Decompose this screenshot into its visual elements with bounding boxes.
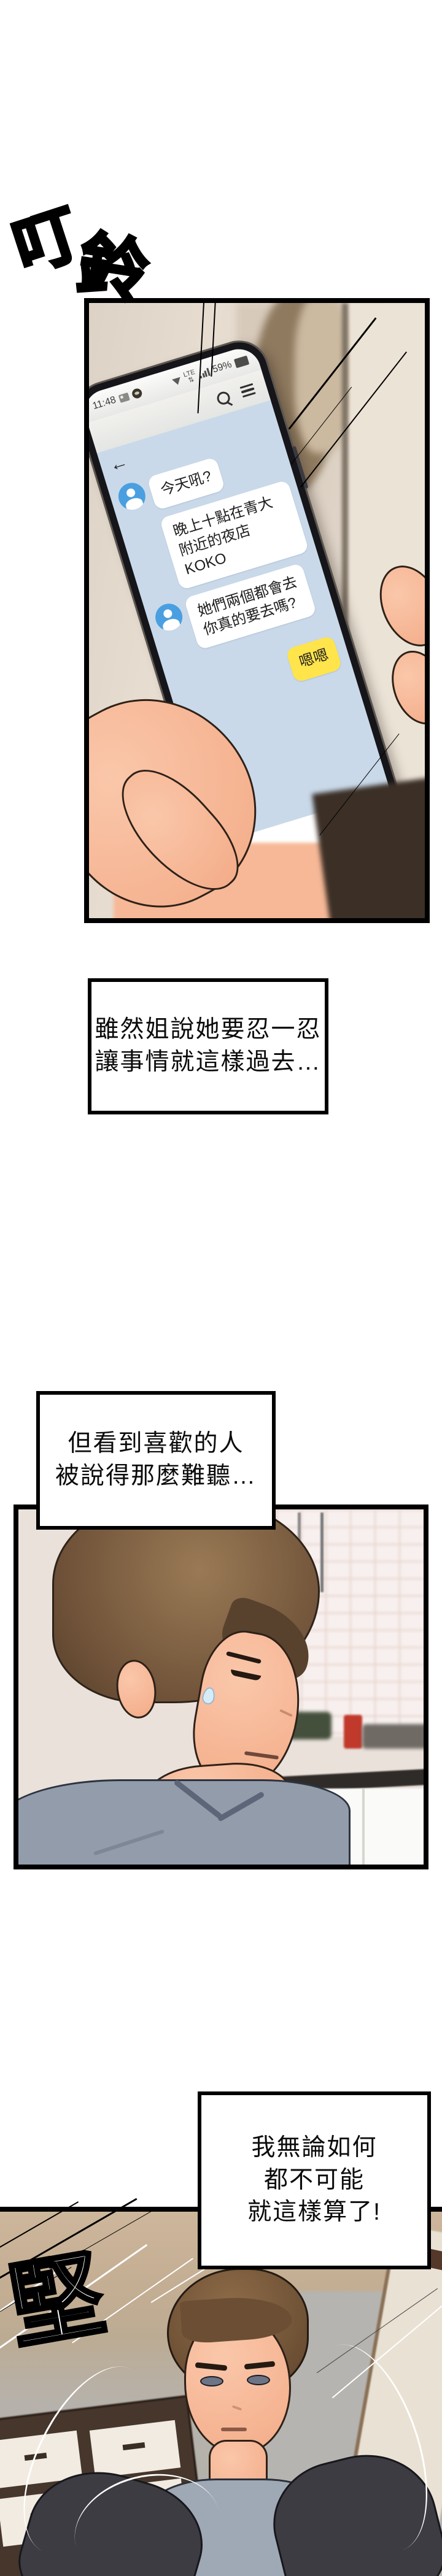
narration-line: 雖然姐說她要忍一忍	[95, 1014, 321, 1046]
wifi-icon	[172, 377, 182, 386]
body-shadow	[312, 770, 430, 923]
chat-bubble-sent: 嗯嗯	[285, 635, 343, 683]
narration-line: 都不可能	[264, 2164, 365, 2197]
notification-image-icon	[118, 392, 130, 402]
narration-box: 雖然姐說她要忍一忍 讓事情就這樣過去…	[88, 978, 328, 1114]
dish-rack	[362, 1724, 428, 1749]
sfx-ring-char1: 叮	[6, 201, 87, 282]
man2-mouth	[221, 2428, 247, 2431]
hanging-utensil	[320, 1512, 324, 1592]
narration-line: 就這樣算了!	[247, 2196, 381, 2229]
lte-icon: LTE⇅	[183, 369, 198, 386]
comic-page: 叮 鈴 11:48 LTE⇅	[0, 0, 442, 2576]
man2-eye	[200, 2376, 223, 2386]
notification-talk-icon	[131, 388, 143, 400]
panel-phone-scene: 11:48 LTE⇅ 59% ←	[84, 298, 430, 923]
status-time: 11:48	[91, 394, 117, 412]
narration-line: 我無論如何	[251, 2132, 377, 2164]
panel-kitchen-scene	[14, 1505, 428, 1869]
battery-icon	[234, 355, 249, 368]
man-shirt	[14, 1779, 351, 1869]
cabinet-divider	[362, 1788, 365, 1868]
narration-box: 我無論如何 都不可能 就這樣算了!	[198, 2091, 431, 2269]
avatar	[152, 600, 186, 634]
sfx-ring-char2: 鈴	[74, 229, 152, 308]
hamburger-menu-icon	[239, 383, 255, 397]
narration-line: 但看到喜歡的人	[68, 1428, 244, 1460]
narration-line: 被說得那麼難聽…	[55, 1460, 257, 1493]
avatar	[115, 480, 149, 513]
search-icon	[215, 390, 231, 406]
battery-percent: 59%	[211, 359, 233, 376]
red-can	[344, 1715, 362, 1749]
man2-eye	[247, 2375, 270, 2385]
narration-line: 讓事情就這樣過去…	[95, 1046, 321, 1079]
narration-box: 但看到喜歡的人 被說得那麼難聽…	[36, 1391, 276, 1530]
sfx-slam: 堅	[2, 2247, 110, 2355]
